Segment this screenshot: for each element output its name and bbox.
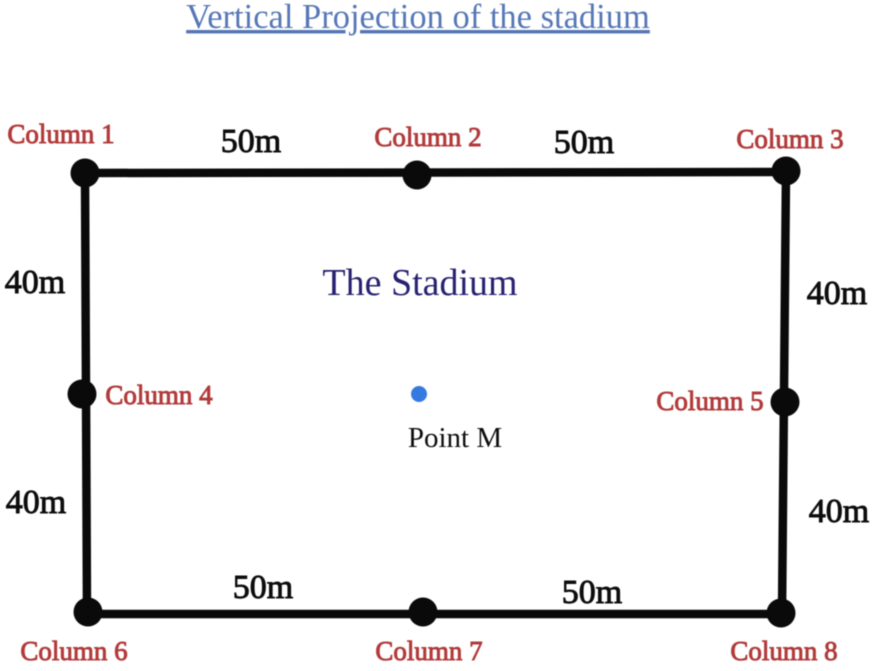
- svg-text:Column 2: Column 2: [374, 122, 481, 152]
- svg-text:40m: 40m: [6, 484, 66, 521]
- svg-text:40m: 40m: [809, 493, 869, 530]
- svg-text:Column 4: Column 4: [105, 380, 213, 410]
- svg-text:40m: 40m: [807, 275, 867, 312]
- svg-text:Vertical Projection of the sta: Vertical Projection of the stadium: [186, 0, 650, 36]
- svg-text:The Stadium: The Stadium: [322, 262, 517, 304]
- svg-text:Column 7: Column 7: [375, 636, 482, 666]
- svg-text:50m: 50m: [554, 124, 614, 161]
- svg-text:50m: 50m: [221, 123, 281, 160]
- svg-text:Column 3: Column 3: [736, 124, 843, 154]
- svg-text:50m: 50m: [233, 569, 293, 606]
- svg-text:Point M: Point M: [408, 422, 502, 454]
- svg-text:Column 8: Column 8: [730, 636, 837, 666]
- svg-text:Column 6: Column 6: [20, 636, 127, 666]
- svg-text:40m: 40m: [5, 264, 65, 301]
- svg-text:50m: 50m: [562, 574, 622, 611]
- svg-text:Column 5: Column 5: [656, 386, 763, 416]
- svg-text:Column 1: Column 1: [7, 119, 114, 149]
